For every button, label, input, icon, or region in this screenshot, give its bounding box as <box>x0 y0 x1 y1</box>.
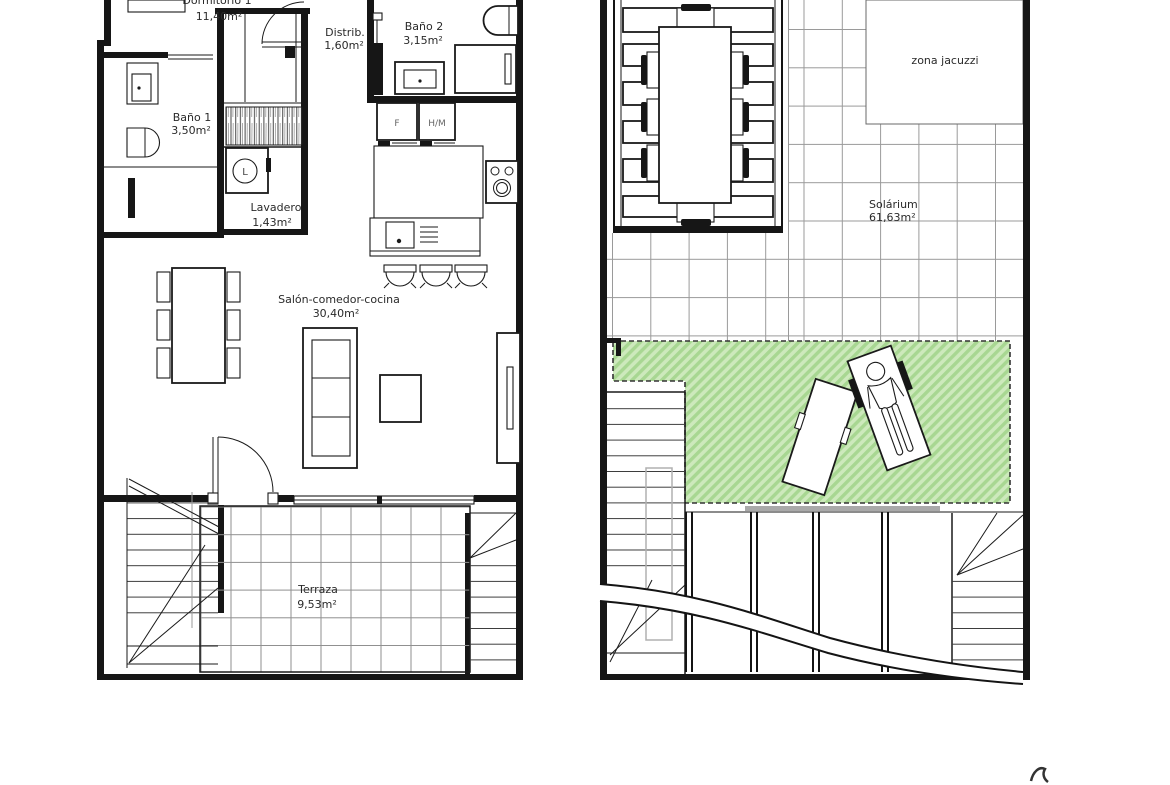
solarium-stairs-right <box>952 513 1023 672</box>
room-label-jacuzzi: zona jacuzzi <box>911 54 978 67</box>
solarium-tiles-band <box>607 233 788 341</box>
room-label-terraza-name: Terraza <box>297 583 338 596</box>
room-label-bano2-name: Baño 2 <box>405 20 443 33</box>
room-label-distribuidor-name: Distrib. <box>325 26 365 39</box>
room-label-solarium-name: Solárium <box>869 198 918 211</box>
hob <box>486 161 518 203</box>
appliance-label-oven-micro: H/M <box>428 119 446 129</box>
sofa <box>303 328 357 468</box>
solarium-stairs-left <box>607 392 685 674</box>
room-label-terraza-area: 9,53m² <box>297 598 337 611</box>
appliance-label-fridge: F <box>394 119 399 129</box>
bar-stool <box>455 265 487 288</box>
room-label-bano1-area: 3,50m² <box>171 124 211 137</box>
corner-mark <box>1031 768 1048 782</box>
room-label-salon-area: 30,40m² <box>313 307 360 320</box>
window-salon <box>294 496 474 504</box>
room-label-bano2-area: 3,15m² <box>403 34 443 47</box>
room-label-bano1-name: Baño 1 <box>173 111 211 124</box>
room-label-dormitorio1-area: 11,40m² <box>196 10 243 23</box>
side-table <box>380 375 421 422</box>
room-label-solarium-area: 61,63m² <box>869 211 916 224</box>
door-salon <box>208 437 278 504</box>
room-label-lavadero-name: Lavadero <box>251 201 302 214</box>
ground-floor-plan: L <box>97 0 523 680</box>
washer-label: L <box>242 167 248 178</box>
bar-stool <box>384 265 416 288</box>
kitchen <box>370 103 518 288</box>
floorplan-image: L <box>0 0 1170 785</box>
solarium-floor-plan: zona jacuzzi <box>600 0 1030 684</box>
dining-table-set <box>157 268 240 383</box>
plans-svg: L <box>0 0 1170 785</box>
washing-machine: L <box>226 148 271 193</box>
room-label-dormitorio1-name: Dormitorio 1 <box>182 0 251 7</box>
room-label-distribuidor-area: 1,60m² <box>324 39 364 52</box>
outdoor-dining-table <box>641 4 749 226</box>
bathroom1-shower <box>101 167 220 218</box>
bathroom2-fixtures <box>371 6 518 95</box>
jacuzzi-zone: zona jacuzzi <box>866 0 1023 124</box>
bathroom1-sink <box>127 63 158 104</box>
room-label-salon-name: Salón-comedor-cocina <box>278 293 400 306</box>
terraza-stairs-right <box>470 513 516 672</box>
tv-unit <box>497 333 520 463</box>
room-label-lavadero-area: 1,43m² <box>252 216 292 229</box>
bar-stool <box>420 265 452 288</box>
bathroom1-toilet <box>127 128 160 157</box>
